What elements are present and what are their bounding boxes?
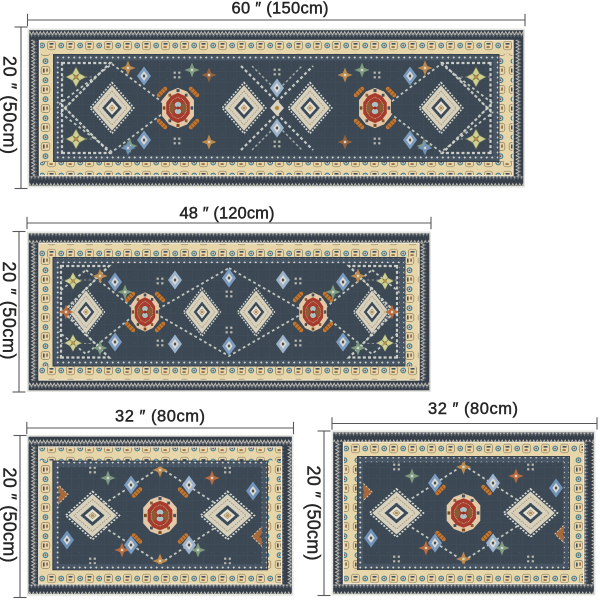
svg-text:32 ″ (80cm): 32 ″ (80cm) [115,408,205,426]
svg-text:20 ″ (50cm): 20 ″ (50cm) [0,468,20,563]
svg-text:20 ″ (50cm): 20 ″ (50cm) [0,56,20,154]
svg-text:20 ″ (50cm): 20 ″ (50cm) [0,262,19,360]
svg-text:32 ″ (80cm): 32 ″ (80cm) [428,400,518,418]
svg-text:60 ″ (150cm): 60 ″ (150cm) [232,0,329,18]
svg-text:48 ″ (120cm): 48 ″ (120cm) [180,205,275,223]
svg-text:20 ″ (50cm): 20 ″ (50cm) [304,466,324,561]
